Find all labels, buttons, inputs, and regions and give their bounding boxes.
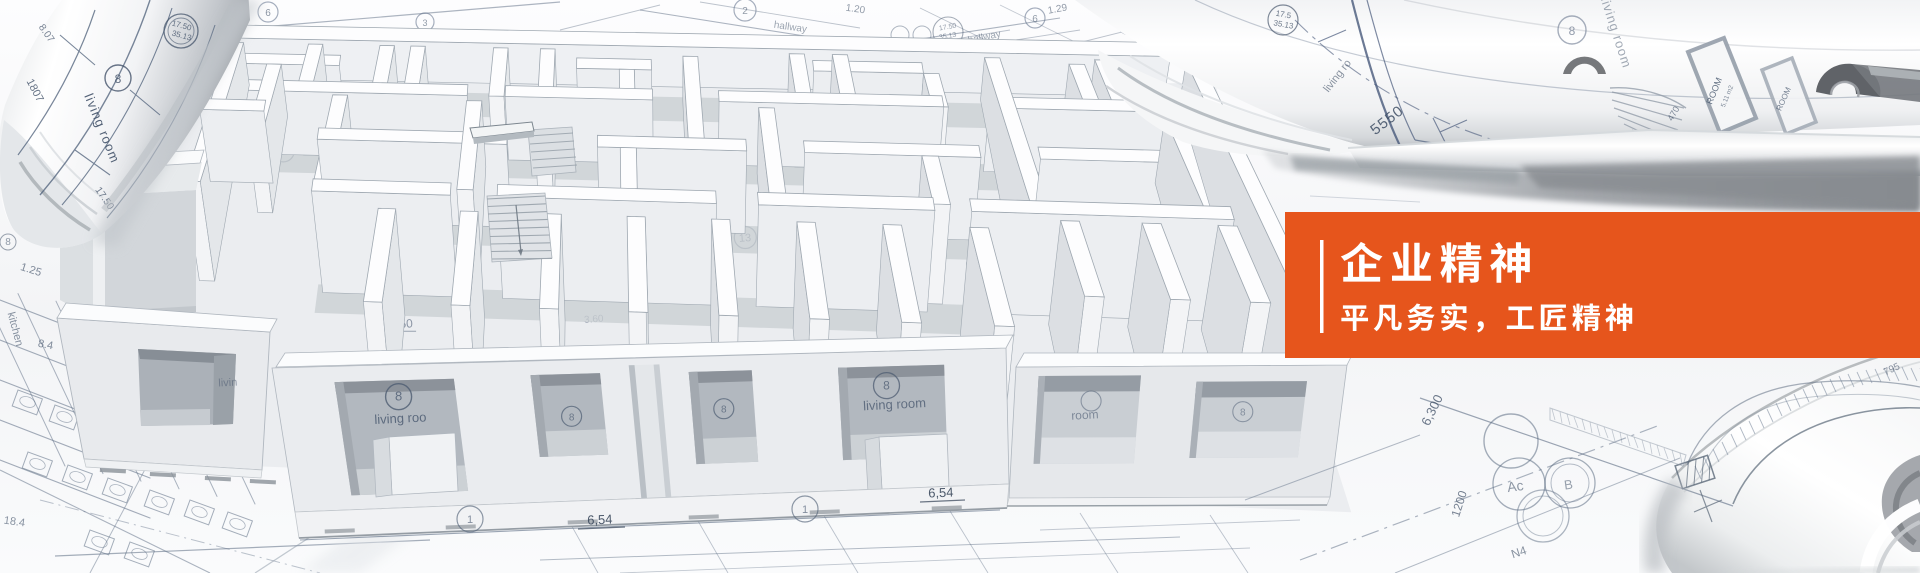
svg-text:living roo: living roo bbox=[374, 409, 427, 427]
svg-text:livin: livin bbox=[218, 377, 238, 390]
svg-text:8: 8 bbox=[883, 379, 890, 393]
svg-text:1: 1 bbox=[802, 504, 808, 516]
svg-text:8: 8 bbox=[721, 405, 727, 416]
svg-text:8: 8 bbox=[569, 412, 575, 423]
svg-text:2: 2 bbox=[742, 6, 748, 17]
svg-text:8: 8 bbox=[1240, 408, 1246, 419]
svg-text:6: 6 bbox=[265, 8, 271, 19]
svg-text:3: 3 bbox=[422, 18, 427, 28]
svg-text:8: 8 bbox=[1569, 24, 1576, 38]
svg-text:room: room bbox=[1071, 407, 1099, 422]
svg-text:6,54: 6,54 bbox=[587, 512, 613, 528]
svg-text:8: 8 bbox=[115, 72, 122, 86]
svg-text:8: 8 bbox=[395, 389, 402, 404]
svg-text:6,54: 6,54 bbox=[928, 485, 954, 501]
svg-text:1: 1 bbox=[467, 514, 473, 526]
svg-text:8: 8 bbox=[5, 237, 11, 248]
svg-text:Ac: Ac bbox=[1506, 477, 1524, 495]
